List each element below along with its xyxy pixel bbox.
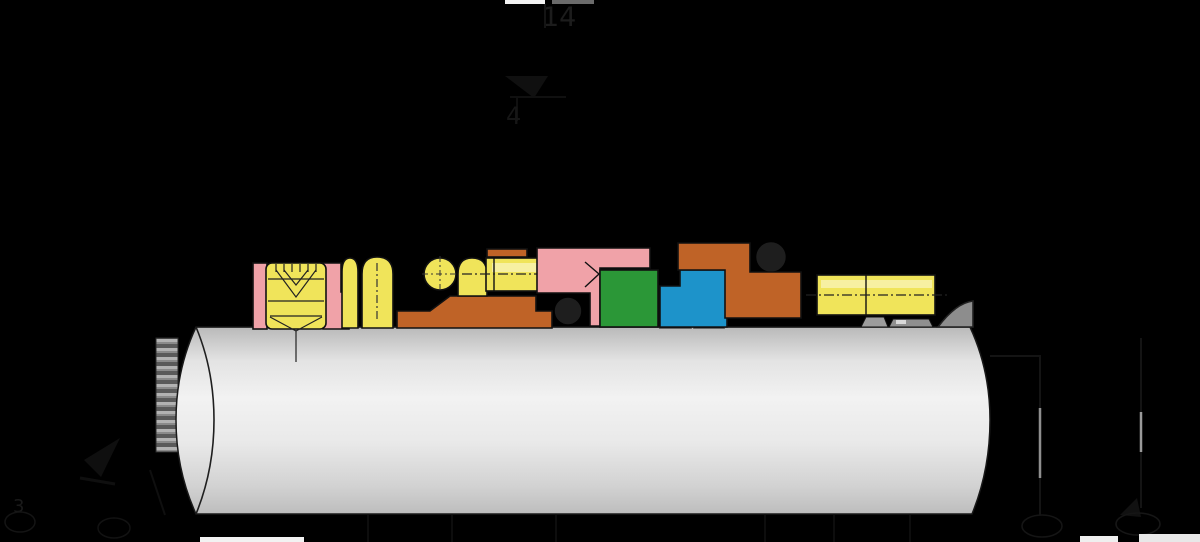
sleeve-bump xyxy=(889,319,933,327)
shaft-spline-end xyxy=(156,338,178,452)
o-ring xyxy=(756,242,787,273)
collar-highlight xyxy=(821,280,932,288)
bottom-white-strip xyxy=(200,537,304,542)
clamp-ring-left xyxy=(253,263,267,329)
bottom-white-strip xyxy=(1080,536,1118,542)
shaft-group xyxy=(156,317,990,514)
sleeve-bump xyxy=(861,317,888,327)
top-white-strip xyxy=(505,0,545,4)
spring-arch-small xyxy=(458,258,487,296)
stationary-seal-face xyxy=(600,270,658,327)
bottom-white-strip xyxy=(1139,534,1200,542)
seal-diagram: 14 4 3 xyxy=(0,0,1200,542)
callout-label-top: 14 xyxy=(542,2,576,33)
callout-label-bottom-left: 3 xyxy=(13,496,24,517)
shaft-body xyxy=(176,327,990,514)
seal-diagram-canvas: 14 4 3 xyxy=(0,0,1200,542)
sleeve-bump-highlight xyxy=(896,320,906,324)
callout-label-upper: 4 xyxy=(506,102,521,130)
o-ring xyxy=(554,297,582,325)
housing-top-bar xyxy=(487,249,527,257)
spring-arch xyxy=(342,258,358,328)
